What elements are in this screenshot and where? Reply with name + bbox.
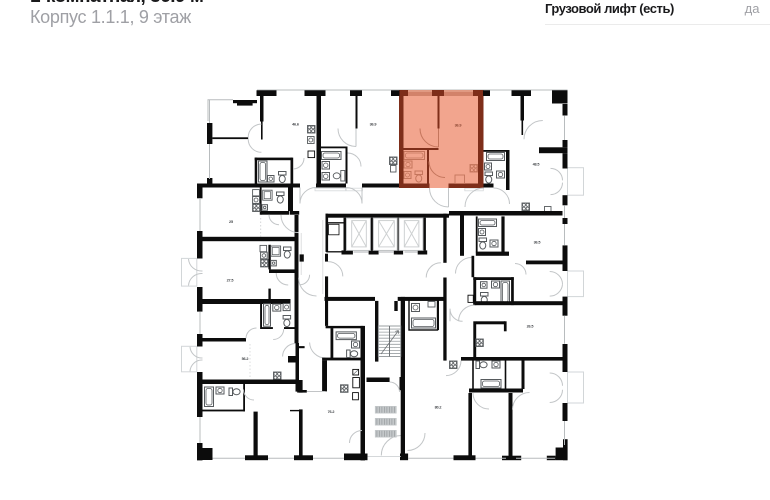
svg-text:46.6: 46.6 (292, 123, 299, 127)
svg-text:56.2: 56.2 (242, 357, 249, 361)
svg-text:80.2: 80.2 (435, 406, 442, 410)
svg-text:36.9: 36.9 (370, 123, 377, 127)
svg-text:36.5: 36.5 (534, 241, 541, 245)
svg-text:48.5: 48.5 (533, 163, 540, 167)
svg-text:26.5: 26.5 (527, 325, 534, 329)
svg-text:25: 25 (229, 220, 233, 224)
svg-text:76.2: 76.2 (328, 410, 335, 414)
svg-text:27.5: 27.5 (227, 279, 234, 283)
svg-text:36.9: 36.9 (455, 124, 462, 128)
